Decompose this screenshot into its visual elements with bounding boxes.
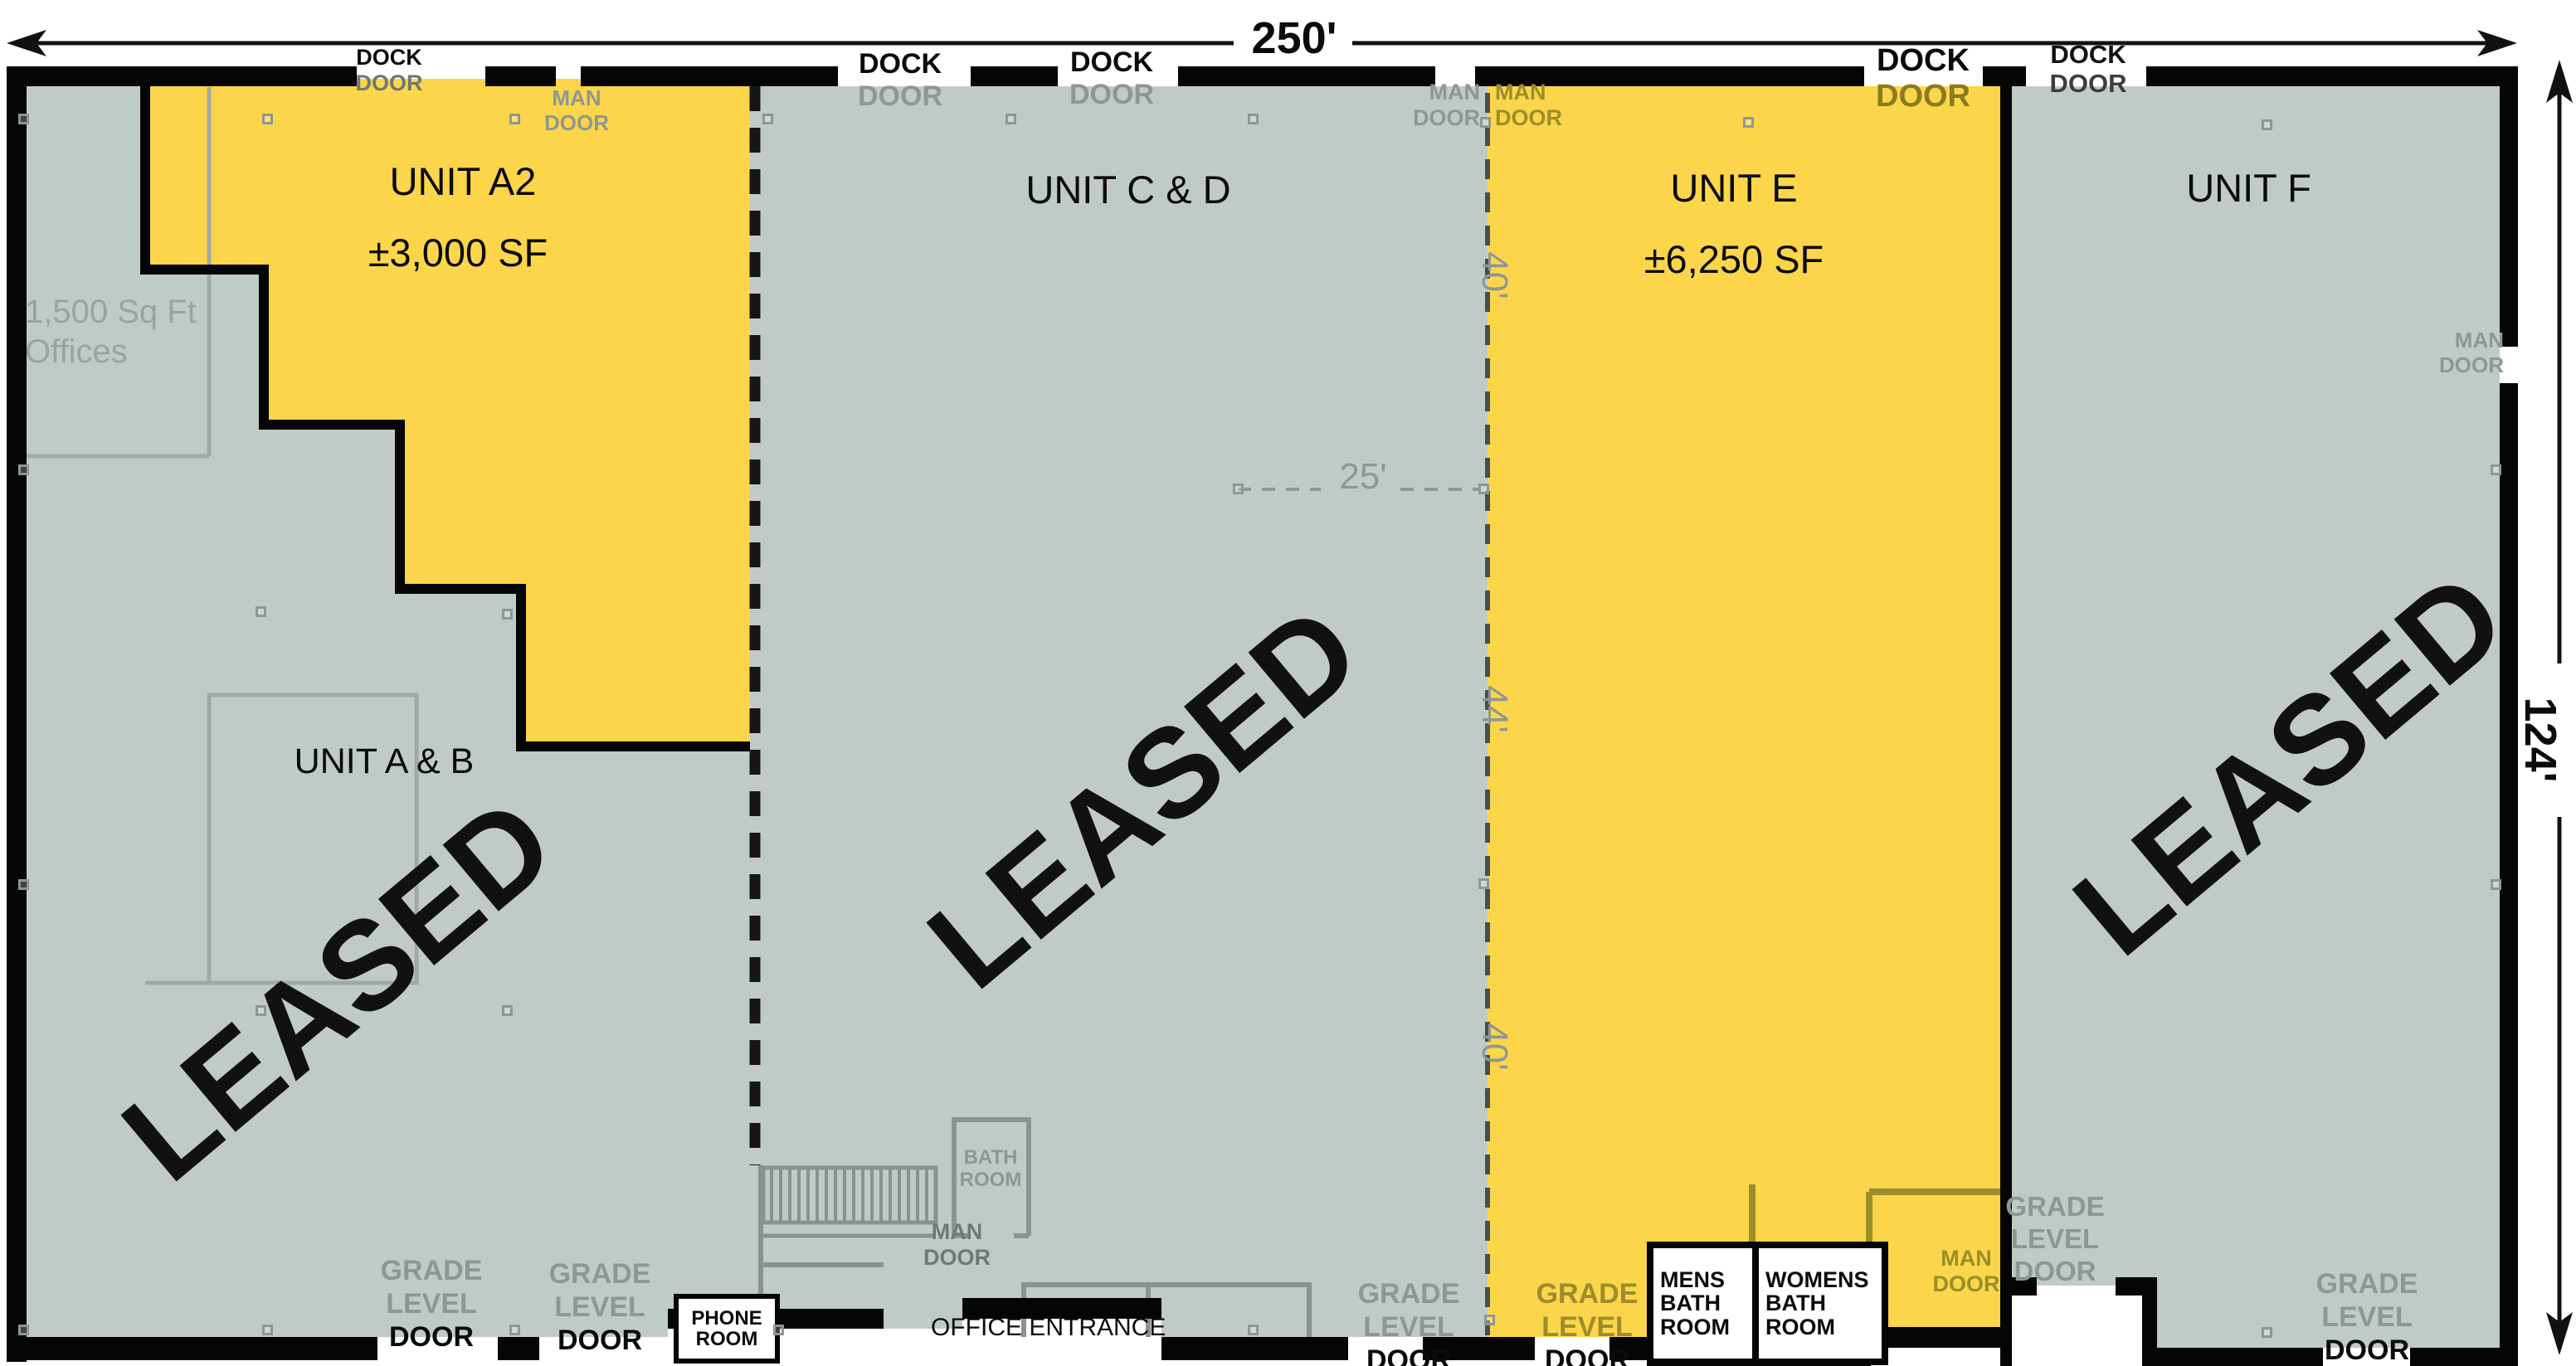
dock-door-2-text-line-1: DOCK xyxy=(850,48,950,80)
grade-door-3-text-line-2: LEVEL xyxy=(1352,1310,1465,1344)
mens-bath-room-text-line-3: ROOM xyxy=(1660,1315,1764,1339)
mens-bath-room-text-line-2: BATH xyxy=(1660,1291,1764,1315)
column-marker xyxy=(262,1325,273,1335)
man-door-f-text-line-1: MAN xyxy=(2429,328,2504,353)
dim-250-label: 250' xyxy=(1236,13,1352,65)
dock-door-2-label: DOCKDOOR xyxy=(850,48,950,113)
phone-room-text-line-2: ROOM xyxy=(679,1329,775,1349)
man-door-e-bottom-text-line-1: MAN xyxy=(1931,1246,2001,1271)
left-wall xyxy=(7,66,27,1362)
grade-door-1-text-line-3: DOOR xyxy=(375,1320,488,1354)
dim-25-label: 25' xyxy=(1327,456,1399,498)
dock-door-4-label: DOCKDOOR xyxy=(1869,43,1977,115)
man-door-f-text-line-2: DOOR xyxy=(2429,353,2504,378)
grade-door-6-text-line-2: LEVEL xyxy=(2311,1300,2423,1334)
unit-a2-size-label: ±3,000 SF xyxy=(334,231,582,275)
column-marker xyxy=(1478,878,1489,889)
column-marker xyxy=(502,1005,513,1016)
column-marker xyxy=(2262,119,2272,130)
column-marker xyxy=(2491,879,2501,890)
man-door-office-label: MANDOOR xyxy=(918,1219,996,1271)
column-marker xyxy=(256,1005,266,1016)
bath-room-text-line-2: ROOM xyxy=(954,1169,1027,1191)
womens-bath-room-text-line-2: BATH xyxy=(1765,1291,1882,1315)
man-door-f-label: MANDOOR xyxy=(2429,328,2504,377)
dock-door-3-text-line-1: DOCK xyxy=(1062,46,1161,79)
dock-door-5-label: DOCKDOOR xyxy=(2037,40,2140,99)
grade-door-2-text-line-1: GRADE xyxy=(543,1257,656,1291)
womens-bath-room-text-line-3: ROOM xyxy=(1765,1315,1882,1339)
unit-e-size-label: ±6,250 SF xyxy=(1614,237,1854,282)
dim-250-text-line-1: 250' xyxy=(1236,13,1352,65)
grade-door-3-text-line-1: GRADE xyxy=(1352,1277,1465,1310)
phone-room-text-line-1: PHONE xyxy=(679,1308,775,1329)
grade-door-2-text-line-2: LEVEL xyxy=(543,1291,656,1324)
column-marker xyxy=(18,1325,29,1335)
column-marker xyxy=(1484,1315,1495,1325)
column-marker xyxy=(18,879,29,890)
column-marker xyxy=(1248,1325,1259,1335)
grade-door-5-text-line-3: DOOR xyxy=(2001,1256,2109,1288)
unit-a2-size-text-line-1: ±3,000 SF xyxy=(334,231,582,275)
grade-door-5-label: GRADELEVELDOOR xyxy=(2001,1191,2109,1288)
bath-room-text-line-1: BATH xyxy=(954,1146,1027,1169)
dim-124-label: 124' xyxy=(2515,690,2565,790)
dock-door-1-label: DOCKDOOR xyxy=(339,45,439,96)
unit-cd-area xyxy=(750,86,1488,1337)
man-door-a2-label: MANDOOR xyxy=(538,86,615,135)
man-door-cd-label: MANDOOR xyxy=(1397,80,1480,131)
grade-door-3-text-line-3: DOOR xyxy=(1352,1344,1465,1366)
mens-bath-room-text-line-1: MENS xyxy=(1660,1268,1764,1291)
grade-door-1-label: GRADELEVELDOOR xyxy=(375,1254,488,1354)
grade-door-5-text-line-2: LEVEL xyxy=(2001,1223,2109,1256)
column-marker xyxy=(1006,114,1016,124)
unit-cd-name-label: UNIT C & D xyxy=(1000,168,1257,212)
man-door-a2-text-line-1: MAN xyxy=(538,86,615,111)
offices-note-text-line-2: Offices xyxy=(25,332,224,372)
dim-44-label: 44' xyxy=(1472,673,1515,746)
dock-door-4-text-line-1: DOCK xyxy=(1869,43,1977,79)
grade-door-3-label: GRADELEVELDOOR xyxy=(1352,1277,1465,1366)
man-door-cd-text-line-1: MAN xyxy=(1397,80,1480,105)
dock-door-5-text-line-1: DOCK xyxy=(2037,40,2140,69)
unit-a2-name-text-line-1: UNIT A2 xyxy=(363,159,562,204)
bath-room-label: BATHROOM xyxy=(954,1146,1027,1192)
grade-door-4-text-line-1: GRADE xyxy=(1531,1277,1643,1310)
column-marker xyxy=(2491,464,2501,475)
unit-f-name-label: UNIT F xyxy=(2164,166,2334,211)
grade-door-6-label: GRADELEVELDOOR xyxy=(2311,1267,2423,1366)
office-entrance-text-line-1: OFFICE ENTRANCE xyxy=(931,1314,1138,1342)
unit-e-name-label: UNIT E xyxy=(1643,166,1825,211)
man-door-e-bottom-label: MANDOOR xyxy=(1931,1246,2001,1297)
column-marker xyxy=(509,114,520,124)
column-marker xyxy=(1743,117,1754,128)
dock-door-2-text-line-2: DOOR xyxy=(850,80,950,113)
man-door-office-text-line-1: MAN xyxy=(918,1219,996,1245)
column-marker xyxy=(762,114,773,124)
unit-e-name-text-line-1: UNIT E xyxy=(1643,166,1825,211)
grade-door-5-text-line-1: GRADE xyxy=(2001,1191,2109,1223)
column-marker xyxy=(18,464,29,475)
man-door-e-text-line-2: DOOR xyxy=(1495,105,1578,131)
man-door-e-label: MANDOOR xyxy=(1495,80,1578,131)
unit-cd-name-text-line-1: UNIT C & D xyxy=(1000,168,1257,212)
grade-door-6-text-line-1: GRADE xyxy=(2311,1267,2423,1300)
dock-door-1-text-line-2: DOOR xyxy=(339,70,439,96)
column-marker xyxy=(256,606,266,617)
grade-door-2-text-line-3: DOOR xyxy=(543,1324,656,1357)
man-door-office-text-line-2: DOOR xyxy=(918,1245,996,1271)
offices-note-text-line-1: 1,500 Sq Ft xyxy=(25,292,224,332)
unit-f-name-text-line-1: UNIT F xyxy=(2164,166,2334,211)
unit-ab-name-label: UNIT A & B xyxy=(264,741,504,782)
floor-plan: 250'124'25'40'44'40'DOCKDOORDOCKDOORDOCK… xyxy=(0,0,2576,1366)
man-door-cd-text-line-2: DOOR xyxy=(1397,105,1480,131)
womens-bath-room-label: WOMENSBATHROOM xyxy=(1752,1242,1888,1365)
unit-a2-name-label: UNIT A2 xyxy=(363,159,562,204)
offices-note-label: 1,500 Sq FtOffices xyxy=(25,292,224,372)
dock-door-1-text-line-1: DOCK xyxy=(339,45,439,70)
column-marker xyxy=(773,1325,784,1335)
office-entrance-label: OFFICE ENTRANCE xyxy=(931,1314,1138,1342)
column-marker xyxy=(1480,117,1491,128)
phone-room-label: PHONEROOM xyxy=(674,1294,780,1364)
dim-40a-label: 40' xyxy=(1472,239,1515,312)
man-door-e-bottom-text-line-2: DOOR xyxy=(1931,1271,2001,1297)
dim-40a-text-line-1: 40' xyxy=(1473,239,1515,312)
dim-25-text-line-1: 25' xyxy=(1327,456,1399,498)
dim-44-text-line-1: 44' xyxy=(1473,673,1515,746)
man-door-e-text-line-1: MAN xyxy=(1495,80,1578,105)
unit-e-size-text-line-1: ±6,250 SF xyxy=(1614,237,1854,282)
dock-door-5-text-line-2: DOOR xyxy=(2037,69,2140,98)
grade-door-1-text-line-2: LEVEL xyxy=(375,1287,488,1320)
man-door-a2-text-line-2: DOOR xyxy=(538,111,615,136)
unit-e-f-wall xyxy=(2000,86,2012,1366)
column-marker xyxy=(509,1325,520,1335)
grade-door-2-label: GRADELEVELDOOR xyxy=(543,1257,656,1357)
dim-40b-label: 40' xyxy=(1472,1010,1515,1083)
grade-door-1-text-line-1: GRADE xyxy=(375,1254,488,1287)
dim-124-text-line-1: 124' xyxy=(2514,690,2565,790)
dock-door-4-text-line-2: DOOR xyxy=(1869,79,1977,114)
column-marker xyxy=(1248,114,1259,124)
column-marker xyxy=(2262,1327,2272,1338)
grade-door-4-label: GRADELEVELDOOR xyxy=(1531,1277,1643,1366)
grade-door-4-text-line-3: DOOR xyxy=(1531,1344,1643,1366)
unit-ab-name-text-line-1: UNIT A & B xyxy=(264,741,504,782)
column-marker xyxy=(18,114,29,124)
womens-bath-room-text-line-1: WOMENS xyxy=(1765,1268,1882,1291)
dim-40b-text-line-1: 40' xyxy=(1473,1010,1515,1083)
column-marker xyxy=(1233,484,1244,494)
column-marker xyxy=(1478,484,1489,494)
grade-door-6-text-line-3: DOOR xyxy=(2311,1334,2423,1366)
dock-door-3-label: DOCKDOOR xyxy=(1062,46,1161,111)
column-marker xyxy=(502,609,513,620)
dock-door-3-text-line-2: DOOR xyxy=(1062,79,1161,111)
grade-door-4-text-line-2: LEVEL xyxy=(1531,1310,1643,1344)
unit-f-area-left xyxy=(2009,86,2142,1286)
column-marker xyxy=(262,114,273,124)
